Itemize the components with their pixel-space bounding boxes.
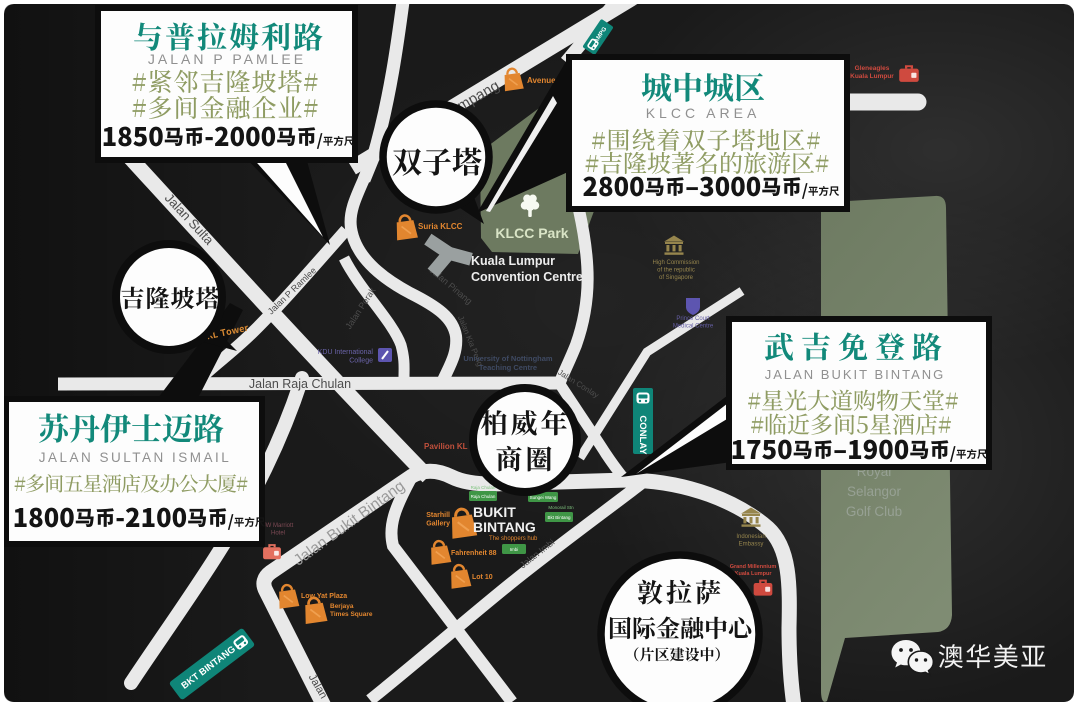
- svg-text:Kuala Lumpur: Kuala Lumpur: [850, 73, 894, 80]
- svg-text:Fahrenheit 88: Fahrenheit 88: [451, 550, 497, 557]
- svg-text:Raja Chulan: Raja Chulan: [471, 485, 496, 490]
- svg-text:High Commission: High Commission: [652, 260, 699, 266]
- svg-text:Starhill: Starhill: [426, 512, 450, 519]
- svg-text:University of Nottingham: University of Nottingham: [463, 354, 553, 363]
- svg-text:Prince Court: Prince Court: [676, 316, 710, 322]
- svg-text:Berjaya: Berjaya: [330, 603, 354, 610]
- svg-text:Hotel: Hotel: [271, 531, 285, 537]
- svg-text:Teaching Centre: Teaching Centre: [479, 363, 537, 372]
- svg-text:JALAN P PAMLEE: JALAN P PAMLEE: [148, 51, 306, 67]
- svg-text:Selangor: Selangor: [847, 484, 902, 499]
- svg-text:Embassy: Embassy: [739, 542, 764, 548]
- svg-text:JW Marriott: JW Marriott: [263, 523, 294, 529]
- svg-text:Medical Centre: Medical Centre: [673, 324, 714, 330]
- svg-text:Sungei Wang: Sungei Wang: [530, 495, 557, 500]
- svg-text:Lot 10: Lot 10: [472, 574, 493, 581]
- svg-text:KDU International: KDU International: [318, 349, 374, 356]
- svg-text:The shoppers hub: The shoppers hub: [489, 536, 538, 542]
- svg-text:Grand Millennium: Grand Millennium: [730, 564, 777, 570]
- svg-text:Raja Chulan: Raja Chulan: [471, 494, 496, 499]
- svg-text:Suria KLCC: Suria KLCC: [418, 222, 463, 231]
- svg-text:JALAN BUKIT BINTANG: JALAN BUKIT BINTANG: [765, 367, 946, 382]
- svg-text:Times Square: Times Square: [330, 611, 373, 618]
- svg-text:KLCC AREA: KLCC AREA: [646, 105, 761, 121]
- svg-text:Indonesian: Indonesian: [736, 534, 765, 540]
- svg-text:Convention Centre: Convention Centre: [471, 270, 583, 284]
- svg-text:Jalan Raja Chulan: Jalan Raja Chulan: [249, 377, 351, 391]
- svg-text:Gallery: Gallery: [426, 521, 450, 528]
- svg-text:of Singapore: of Singapore: [659, 275, 694, 281]
- svg-text:Monorail Stn: Monorail Stn: [548, 505, 574, 510]
- svg-text:Low Yat Plaza: Low Yat Plaza: [301, 593, 347, 600]
- svg-text:of the republic: of the republic: [657, 268, 695, 274]
- svg-text:Bkt Bintang: Bkt Bintang: [547, 515, 571, 520]
- svg-text:BINTANG: BINTANG: [473, 519, 536, 535]
- svg-text:BUKIT: BUKIT: [473, 504, 516, 520]
- svg-text:College: College: [349, 358, 373, 365]
- svg-text:CONLAY: CONLAY: [637, 415, 648, 455]
- svg-text:Pavilion KL: Pavilion KL: [424, 442, 468, 451]
- svg-text:JALAN SULTAN ISMAIL: JALAN SULTAN ISMAIL: [39, 450, 232, 465]
- svg-text:Golf Club: Golf Club: [846, 504, 902, 519]
- svg-text:Kuala Lumpur: Kuala Lumpur: [735, 571, 773, 577]
- svg-text:Kuala Lumpur: Kuala Lumpur: [471, 254, 555, 268]
- svg-text:Gleneagles: Gleneagles: [855, 65, 890, 72]
- svg-text:KLCC Park: KLCC Park: [495, 225, 568, 241]
- svg-text:Imbi: Imbi: [510, 547, 519, 552]
